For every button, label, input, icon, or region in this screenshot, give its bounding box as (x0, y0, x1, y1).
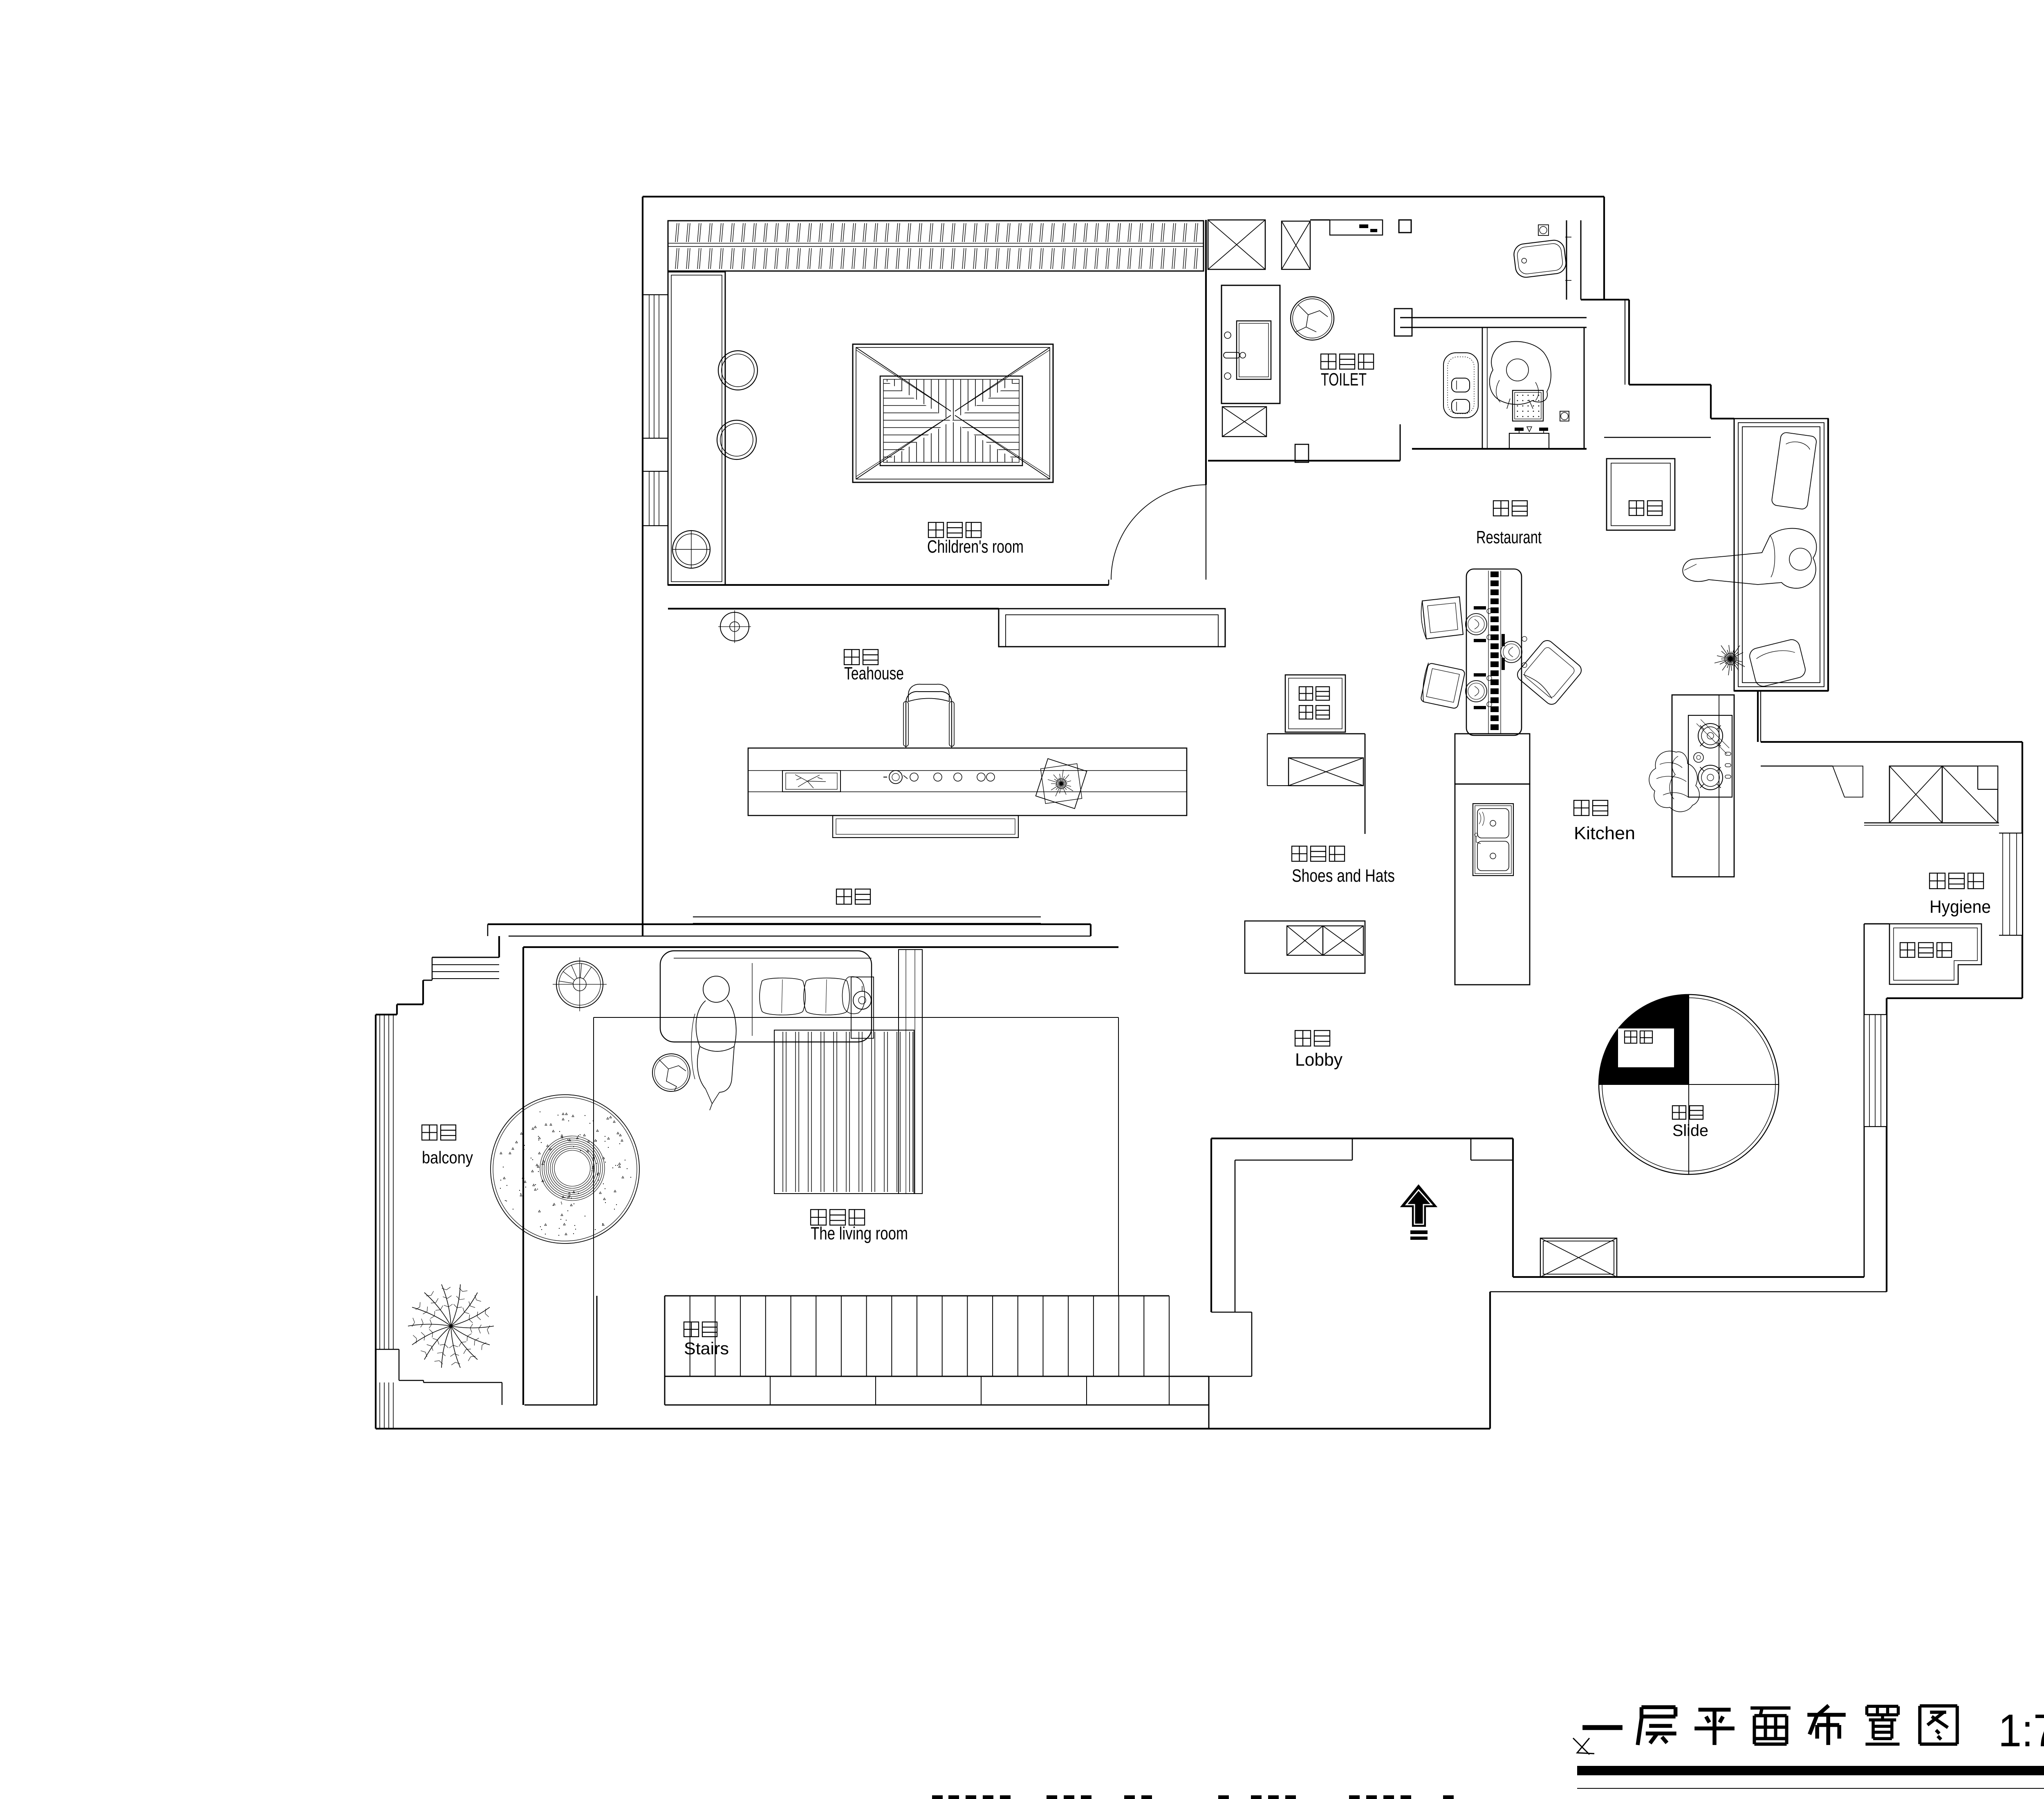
svg-text:The living room: The living room (811, 1223, 908, 1243)
svg-text:Slide: Slide (1672, 1122, 1708, 1140)
svg-text:Shoes and Hats: Shoes and Hats (1292, 866, 1395, 886)
svg-text:balcony: balcony (422, 1148, 473, 1167)
svg-text:Lobby: Lobby (1295, 1050, 1342, 1070)
svg-text:Restaurant: Restaurant (1476, 527, 1542, 547)
svg-text:1:70: 1:70 (1998, 1705, 2044, 1756)
svg-text:Teahouse: Teahouse (844, 663, 904, 683)
svg-text:Kitchen: Kitchen (1574, 823, 1635, 843)
svg-text:Stairs: Stairs (684, 1339, 729, 1358)
svg-text:Hygiene: Hygiene (1930, 897, 1991, 917)
svg-text:Children's room: Children's room (927, 537, 1024, 557)
svg-text:TOILET: TOILET (1321, 370, 1367, 390)
